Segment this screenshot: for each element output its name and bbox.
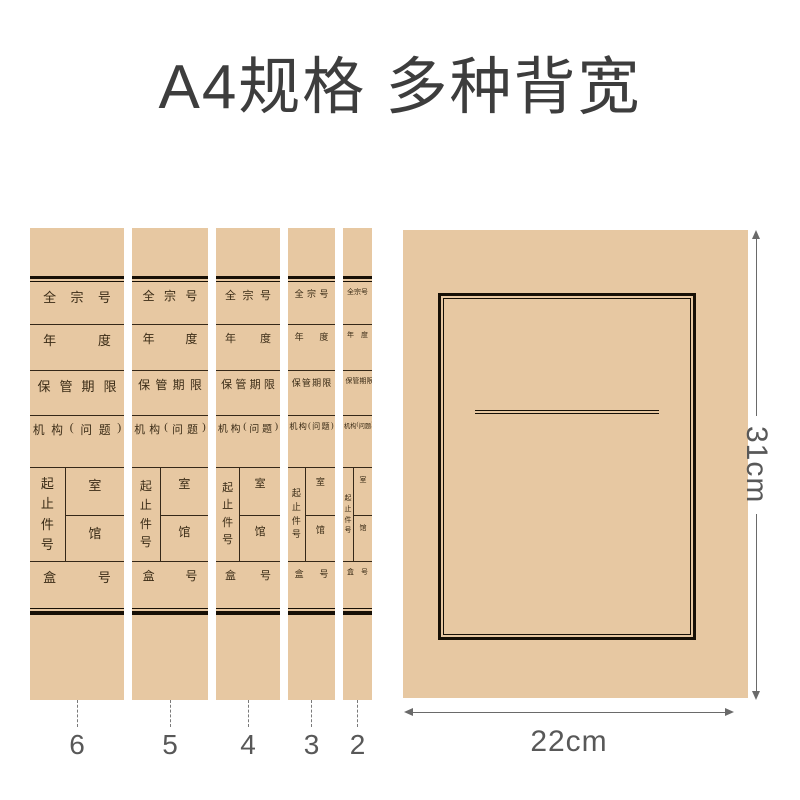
field-jigou: 机构(问题) [288, 416, 335, 468]
label-guan: 馆 [161, 516, 208, 561]
rule-thin-line [343, 608, 372, 609]
label-qizhijianhao: 起止件号 [140, 477, 152, 551]
label-baoguanqixian: 保管期限 [30, 371, 124, 395]
cover-title-line [475, 410, 659, 414]
rule-thick-line [343, 276, 372, 279]
label-quanzonghao: 全宗号 [216, 282, 280, 303]
field-hehao: 盒号 [216, 562, 280, 608]
spine-column: 全宗号 年度 保管期限 机构(问题) 起止件号 室 馆 盒号 4 [216, 228, 280, 761]
spine-bottom-rule [30, 608, 124, 615]
label-niandu: 年度 [343, 325, 372, 340]
field-hehao: 盒号 [343, 562, 372, 608]
spine-width-label: 2 [350, 729, 366, 761]
spine-blank-top [343, 228, 372, 276]
label-guan: 馆 [66, 516, 124, 561]
field-baoguanqixian: 保管期限 [30, 371, 124, 416]
page-title: A4规格 多种背宽 [0, 36, 800, 126]
label-qizhijianhao: 起止件号 [41, 474, 54, 555]
label-niandu: 年度 [216, 325, 280, 346]
rule-thick-line [132, 276, 208, 279]
field-baoguanqixian: 保管期限 [216, 371, 280, 416]
label-jigou: 机构(问题) [343, 416, 372, 430]
width-dimension: 22cm [404, 707, 734, 759]
width-arrow [404, 707, 734, 717]
rule-thin-line [288, 608, 335, 609]
field-jigou: 机构(问题) [30, 416, 124, 468]
archive-box-spine: 全宗号 年度 保管期限 机构(问题) 起止件号 室 馆 盒号 [132, 228, 208, 700]
spine-width-label: 6 [69, 729, 85, 761]
field-niandu: 年度 [132, 325, 208, 371]
cover-panel [403, 230, 748, 698]
label-niandu: 年度 [132, 325, 208, 347]
field-quanzonghao: 全宗号 [288, 282, 335, 325]
label-hehao: 盒号 [132, 562, 208, 584]
label-guan: 馆 [354, 516, 372, 561]
field-shi-guan: 室 馆 [161, 468, 208, 561]
label-quanzonghao: 全宗号 [132, 282, 208, 304]
label-qizhijianhao: 起止件号 [292, 487, 301, 543]
spine-column: 全宗号 年度 保管期限 机构(问题) 起止件号 室 馆 盒号 6 [30, 228, 124, 761]
label-quanzonghao: 全宗号 [288, 282, 335, 300]
field-qizhi-shi-guan: 起止件号 室 馆 [30, 468, 124, 562]
spine-bottom-rule [343, 608, 372, 615]
label-hehao: 盒号 [216, 562, 280, 583]
field-shi-guan: 室 馆 [306, 468, 335, 561]
field-qizhijianhao: 起止件号 [343, 468, 354, 561]
field-shi-guan: 室 馆 [240, 468, 280, 561]
label-baoguanqixian: 保管期限 [216, 371, 280, 392]
label-shi: 室 [240, 468, 280, 516]
spine-width-label: 4 [240, 729, 256, 761]
field-niandu: 年度 [288, 325, 335, 371]
spine-blank-bottom [216, 615, 280, 700]
field-qizhi-shi-guan: 起止件号 室 馆 [288, 468, 335, 562]
spine-blank-bottom [132, 615, 208, 700]
field-qizhijianhao: 起止件号 [132, 468, 161, 561]
field-hehao: 盒号 [30, 562, 124, 608]
leader-dashed-line [311, 700, 312, 727]
spine-width-label: 5 [162, 729, 178, 761]
field-shi-guan: 室 馆 [354, 468, 372, 561]
rule-thick-line [30, 276, 124, 279]
spine-column: 全宗号 年度 保管期限 机构(问题) 起止件号 室 馆 盒号 2 [343, 228, 372, 761]
label-baoguanqixian: 保管期限 [343, 371, 372, 386]
height-dimension: 31cm [749, 230, 763, 700]
field-baoguanqixian: 保管期限 [288, 371, 335, 416]
height-arrow-line-bottom [756, 514, 757, 691]
label-qizhijianhao: 起止件号 [345, 493, 352, 536]
archive-box-spine: 全宗号 年度 保管期限 机构(问题) 起止件号 室 馆 盒号 [343, 228, 372, 700]
spine-blank-top [216, 228, 280, 276]
field-jigou: 机构(问题) [343, 416, 372, 468]
field-qizhijianhao: 起止件号 [288, 468, 306, 561]
label-quanzonghao: 全宗号 [30, 282, 124, 306]
rule-thin-line [30, 608, 124, 609]
label-hehao: 盒号 [288, 562, 335, 580]
field-shi-guan: 室 馆 [66, 468, 124, 561]
label-guan: 馆 [240, 516, 280, 561]
field-baoguanqixian: 保管期限 [132, 371, 208, 416]
field-niandu: 年度 [30, 325, 124, 371]
field-niandu: 年度 [343, 325, 372, 371]
archive-box-spine: 全宗号 年度 保管期限 机构(问题) 起止件号 室 馆 盒号 [30, 228, 124, 700]
spine-blank-bottom [343, 615, 372, 700]
spine-bottom-rule [132, 608, 208, 615]
cover-frame [438, 293, 696, 640]
spine-blank-top [30, 228, 124, 276]
spine-column: 全宗号 年度 保管期限 机构(问题) 起止件号 室 馆 盒号 5 [132, 228, 208, 761]
spine-width-label: 3 [304, 729, 320, 761]
field-qizhi-shi-guan: 起止件号 室 馆 [343, 468, 372, 562]
field-quanzonghao: 全宗号 [216, 282, 280, 325]
label-niandu: 年度 [30, 325, 124, 349]
spine-blank-bottom [288, 615, 335, 700]
leader-dashed-line [77, 700, 78, 727]
cover-frame-inner-line [443, 298, 691, 635]
field-quanzonghao: 全宗号 [132, 282, 208, 325]
spine-blank-top [288, 228, 335, 276]
label-hehao: 盒号 [30, 562, 124, 586]
label-jigou: 机构(问题) [132, 416, 208, 437]
width-arrow-line [413, 712, 725, 713]
field-qizhijianhao: 起止件号 [30, 468, 66, 561]
field-jigou: 机构(问题) [216, 416, 280, 468]
field-qizhi-shi-guan: 起止件号 室 馆 [132, 468, 208, 562]
rule-thick-line [216, 276, 280, 279]
spine-blank-top [132, 228, 208, 276]
rule-thin-line [132, 608, 208, 609]
arrowhead-right-icon [725, 708, 734, 716]
spine-blank-bottom [30, 615, 124, 700]
arrowhead-down-icon [752, 691, 760, 700]
field-quanzonghao: 全宗号 [343, 282, 372, 325]
field-qizhi-shi-guan: 起止件号 室 馆 [216, 468, 280, 562]
width-dimension-label: 22cm [404, 725, 734, 759]
label-baoguanqixian: 保管期限 [132, 371, 208, 393]
height-dimension-label: 31cm [739, 426, 773, 503]
leader-dashed-line [170, 700, 171, 727]
label-shi: 室 [66, 468, 124, 516]
arrowhead-left-icon [404, 708, 413, 716]
label-shi: 室 [306, 468, 335, 516]
label-shi: 室 [161, 468, 208, 516]
spine-bottom-rule [216, 608, 280, 615]
spine-bottom-rule [288, 608, 335, 615]
label-baoguanqixian: 保管期限 [288, 371, 335, 389]
archive-box-spine: 全宗号 年度 保管期限 机构(问题) 起止件号 室 馆 盒号 [288, 228, 335, 700]
label-qizhijianhao: 起止件号 [222, 480, 233, 548]
label-jigou: 机构(问题) [288, 416, 335, 432]
field-qizhijianhao: 起止件号 [216, 468, 240, 561]
field-niandu: 年度 [216, 325, 280, 371]
label-niandu: 年度 [288, 325, 335, 343]
field-quanzonghao: 全宗号 [30, 282, 124, 325]
height-arrow-line-top [756, 239, 757, 416]
field-hehao: 盒号 [288, 562, 335, 608]
arrowhead-up-icon [752, 230, 760, 239]
leader-dashed-line [357, 700, 358, 727]
field-jigou: 机构(问题) [132, 416, 208, 468]
label-hehao: 盒号 [343, 562, 372, 577]
spine-column: 全宗号 年度 保管期限 机构(问题) 起止件号 室 馆 盒号 3 [288, 228, 335, 761]
product-spec-page: A4规格 多种背宽 全宗号 年度 保管期限 机构(问题) 起止件号 室 馆 盒号… [0, 0, 800, 800]
spines-group: 全宗号 年度 保管期限 机构(问题) 起止件号 室 馆 盒号 6 全宗号 年度 … [30, 228, 372, 761]
rule-thin-line [216, 608, 280, 609]
rule-thick-line [288, 276, 335, 279]
label-jigou: 机构(问题) [30, 416, 124, 438]
field-baoguanqixian: 保管期限 [343, 371, 372, 416]
label-shi: 室 [354, 468, 372, 516]
label-guan: 馆 [306, 516, 335, 561]
archive-box-spine: 全宗号 年度 保管期限 机构(问题) 起止件号 室 馆 盒号 [216, 228, 280, 700]
label-jigou: 机构(问题) [216, 416, 280, 435]
field-hehao: 盒号 [132, 562, 208, 608]
leader-dashed-line [248, 700, 249, 727]
label-quanzonghao: 全宗号 [343, 282, 372, 297]
